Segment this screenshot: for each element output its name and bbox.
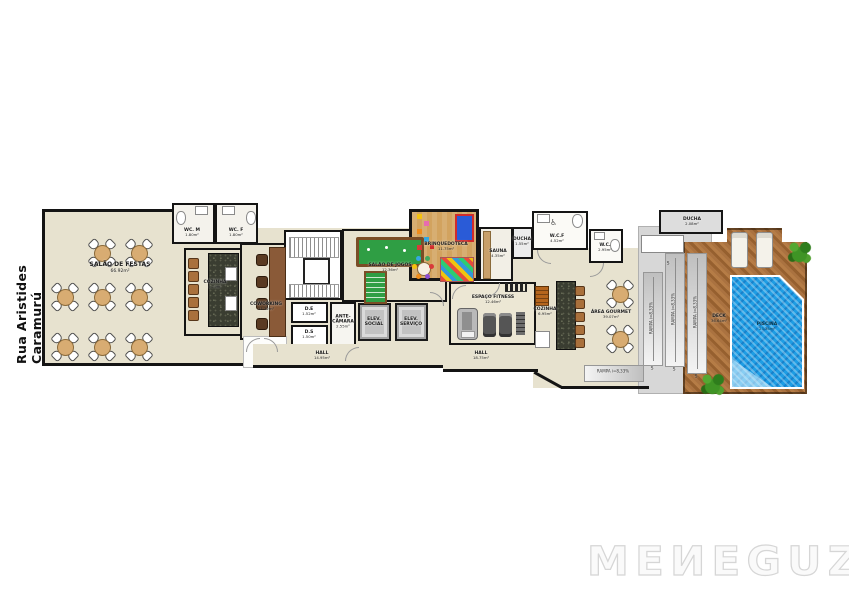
toilet-icon (246, 211, 256, 225)
office-chair (256, 254, 268, 266)
stair-treads-lower (289, 284, 339, 298)
toy-slide (455, 214, 474, 242)
room-label-wc-f: WC. F1.80m² (229, 228, 244, 238)
room-label-ducha-1: DUCHA1.55m² (513, 237, 531, 247)
toy-block (417, 229, 422, 234)
room-label-cozinha-2: COZINHA6.95m² (533, 307, 556, 317)
logo-wordmark: MEИEGUZ (587, 539, 849, 585)
exercise-machine (499, 313, 512, 337)
dining-table (607, 326, 633, 352)
bar-stool (188, 271, 199, 282)
room-label-coworking: COWORKING11.32m² (250, 302, 282, 312)
room-label-fitness: ESPAÇO FITNESS12.46m² (472, 295, 514, 305)
ramp-label: RAMPA i=8,33% (650, 302, 655, 334)
bar-stool (575, 286, 585, 296)
sink-icon (594, 232, 605, 240)
sink-icon (195, 206, 208, 215)
grill-icon (535, 286, 549, 306)
dining-table (52, 284, 78, 310)
pool-water (732, 277, 802, 387)
floor-plan-canvas: Rua Aristides Caramurú WC. M1.80m² WC. F… (0, 0, 849, 600)
toilet-icon (572, 214, 583, 228)
exercise-machine (483, 313, 496, 337)
bar-stool (188, 297, 199, 308)
room-label-cozinha-1: COZINHA9.79m² (203, 280, 226, 290)
street-name-label: Rua Aristides Caramurú (14, 212, 44, 364)
service-stair (641, 235, 684, 253)
room-label-elev-servico: ELEV. SERVIÇO (396, 317, 426, 327)
play-mat (440, 257, 474, 282)
room-label-salao-de-jogos: SALÃO DE JOGOS12.36m² (368, 263, 411, 273)
room-label-area-gourmet: ÁREA GOURMET39.07m² (591, 310, 631, 320)
room-label-elev-social: ELEV. SOCIAL (360, 317, 388, 327)
ramp-label: RAMPA i=8,33% (597, 370, 629, 375)
sun-lounger (731, 232, 748, 268)
kitchen-sink-icon (225, 267, 237, 281)
kitchen-counter (208, 253, 239, 327)
plant-icon (786, 239, 813, 266)
dumbbell-rack (505, 283, 527, 292)
room-label-piscina: PISCINA23.36m² (757, 322, 777, 332)
sink-icon (222, 206, 235, 215)
ramp-direction-mark: S (651, 366, 654, 371)
room-label-wc-2: W.C.2.95m² (598, 243, 612, 253)
foosball-table (364, 271, 387, 304)
dining-table (607, 281, 633, 307)
room-label-wcf: W.C.F4.52m² (550, 234, 564, 244)
bar-stool (188, 310, 199, 321)
ramp-direction-mark: S (667, 261, 670, 266)
bar-stool (575, 299, 585, 309)
gourmet-counter (556, 281, 576, 350)
wheelchair-icon: ♿ (550, 218, 557, 227)
toy-block (417, 245, 422, 250)
dining-table (89, 334, 115, 360)
room-label-wc-m: WC. M1.80m² (184, 228, 200, 238)
toilet-icon (176, 211, 186, 225)
room-label-antecamara: ANTE-CÂMARA2.55m² (330, 315, 356, 330)
stair-treads-upper (289, 237, 339, 258)
room-label-hall-1: HALL14.95m² (314, 351, 330, 361)
coworking-desk (269, 247, 286, 337)
ramp-label: RAMPA i=8,33% (694, 296, 699, 328)
dining-table (52, 334, 78, 360)
pool-entry-ramp (732, 359, 772, 387)
bar-stool (188, 284, 199, 295)
ramp-direction-mark: S (673, 367, 676, 372)
pool (730, 275, 804, 389)
room-label-salao-de-festas: SALÃO DE FESTAS66.92m² (90, 262, 151, 274)
bar-stool (188, 258, 199, 269)
room-label-ds: D.S1.50m² (302, 330, 316, 340)
sun-lounger (756, 232, 773, 268)
ramp-label: RAMPA i=8,33% (672, 293, 677, 325)
office-chair (256, 276, 268, 288)
sink-icon (537, 214, 550, 223)
room-label-ducha-2: DUCHA2.08m² (683, 217, 701, 227)
room-hall-2 (443, 345, 538, 372)
bar-stool (575, 325, 585, 335)
bar-stool (575, 338, 585, 348)
bar-stool (575, 312, 585, 322)
dining-table (126, 334, 152, 360)
kitchen-appliance (535, 331, 550, 348)
ramp-direction-mark: S (695, 374, 698, 379)
plant-icon (699, 371, 726, 398)
office-chair (256, 318, 268, 330)
treadmill (457, 308, 478, 340)
room-label-deck: DECK36.64m² (711, 314, 727, 324)
south-wall (561, 386, 649, 389)
weight-station (516, 312, 525, 335)
stair-landing (303, 258, 330, 285)
dining-table (126, 284, 152, 310)
toy-block (424, 221, 429, 226)
cooktop-icon (225, 296, 237, 311)
room-label-hall-2: HALL18.75m² (473, 351, 489, 361)
room-label-brinquedoteca: BRINQUEDOTECA11.75m² (424, 242, 467, 252)
toy-block (417, 214, 422, 219)
room-label-de: D.E1.52m² (302, 307, 316, 317)
meneguz-logo: MEИEGUZ (577, 531, 847, 593)
kids-table (411, 256, 435, 280)
dining-table (89, 284, 115, 310)
room-label-sauna: SAUNA4.35m² (489, 249, 507, 259)
